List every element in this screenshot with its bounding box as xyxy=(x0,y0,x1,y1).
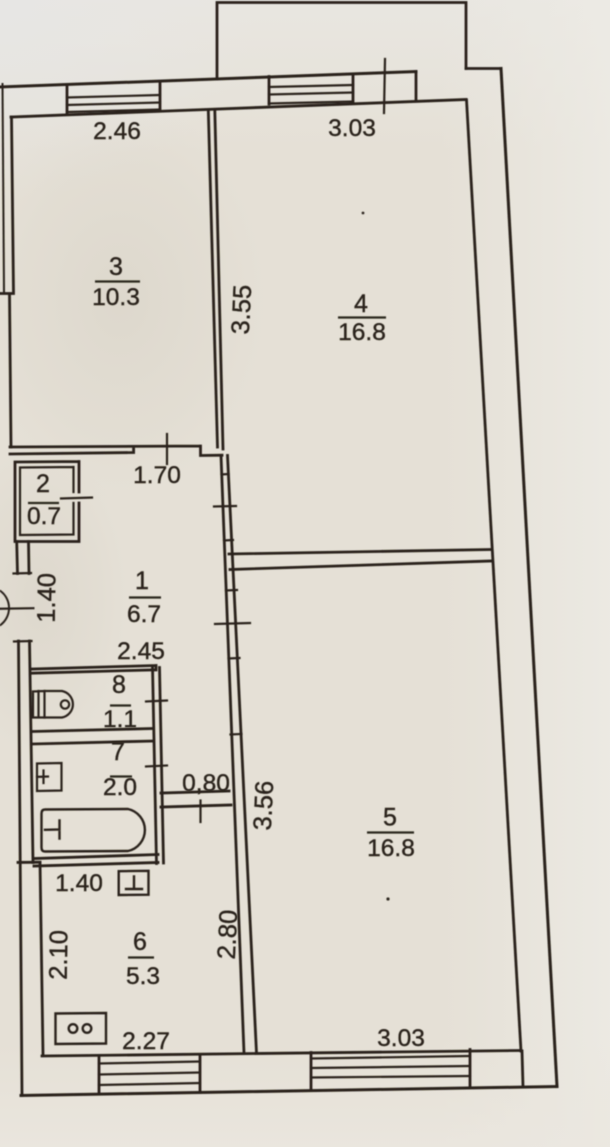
svg-text:6.7: 6.7 xyxy=(127,601,161,628)
svg-text:2.10: 2.10 xyxy=(45,930,74,980)
svg-text:3.55: 3.55 xyxy=(227,284,258,335)
svg-text:10.3: 10.3 xyxy=(92,284,140,311)
svg-text:2.45: 2.45 xyxy=(117,638,165,665)
svg-text:1: 1 xyxy=(135,567,149,595)
svg-text:1.70: 1.70 xyxy=(133,462,181,489)
svg-text:2.46: 2.46 xyxy=(93,118,141,145)
svg-text:5.3: 5.3 xyxy=(126,963,160,990)
svg-text:16.8: 16.8 xyxy=(338,319,386,346)
svg-text:6: 6 xyxy=(133,928,147,956)
svg-text:7: 7 xyxy=(111,738,125,766)
svg-text:4: 4 xyxy=(354,290,368,318)
svg-text:3.56: 3.56 xyxy=(249,780,280,831)
svg-text:1.1: 1.1 xyxy=(103,706,137,733)
svg-text:3.03: 3.03 xyxy=(328,115,376,142)
svg-text:2.0: 2.0 xyxy=(103,774,137,801)
svg-text:5: 5 xyxy=(383,804,397,832)
svg-text:0.7: 0.7 xyxy=(27,503,61,530)
svg-text:2: 2 xyxy=(36,470,50,498)
svg-text:2.27: 2.27 xyxy=(122,1028,170,1055)
svg-text:16.8: 16.8 xyxy=(367,835,415,862)
svg-text:0,80: 0,80 xyxy=(182,770,230,797)
svg-text:1.40: 1.40 xyxy=(33,573,62,623)
svg-text:3.03: 3.03 xyxy=(377,1025,425,1052)
svg-text:2.80: 2.80 xyxy=(213,909,244,960)
svg-text:1.40: 1.40 xyxy=(55,870,103,897)
svg-text:8: 8 xyxy=(112,671,126,699)
svg-text:3: 3 xyxy=(109,253,123,281)
